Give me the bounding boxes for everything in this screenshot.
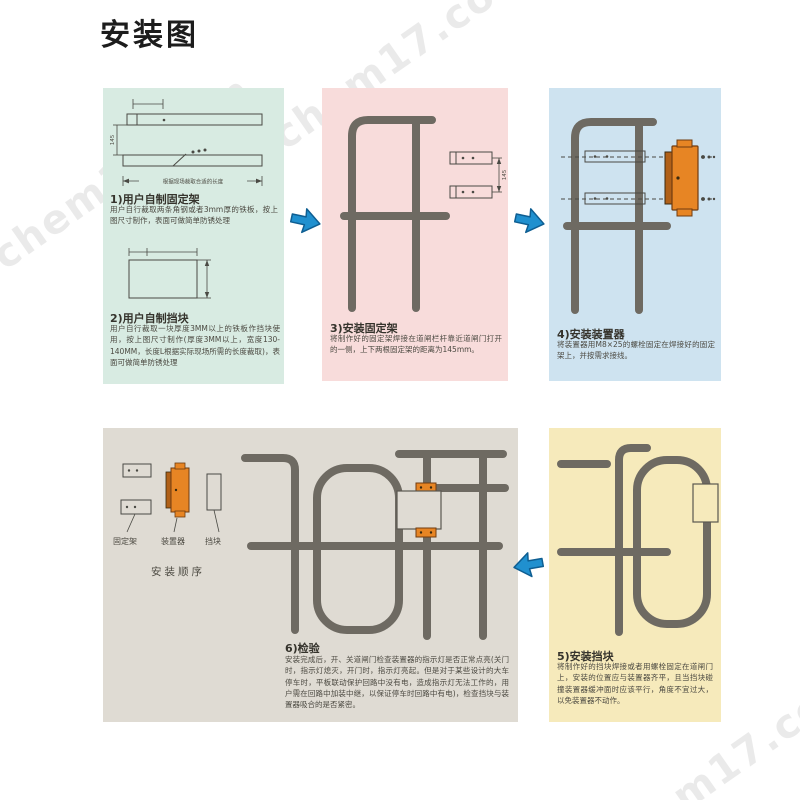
block-on-door-icon bbox=[693, 484, 718, 522]
step1-body: 用户自行裁取两条角钢或者3mm厚的铁板，按上图尺寸制作，表面可做简单防锈处理 bbox=[110, 204, 278, 227]
panel-step-5: 5)安装挡块 将制作好的挡块焊接或者用螺栓固定在道闸门上，安装的位置应与装置器齐… bbox=[549, 428, 721, 722]
step5-body: 将制作好的挡块焊接或者用螺栓固定在道闸门上，安装的位置应与装置器齐平，且当挡块碰… bbox=[557, 661, 713, 706]
frame-gap-dimension: 145 bbox=[110, 134, 116, 145]
step4-body: 将装置器用M8×25的螺栓固定在焊接好的固定架上，并按需求接线。 bbox=[557, 339, 715, 362]
panel-step-3: 145 3)安装固定架 将制作好的固定架焊接在道闸栏杆靠近道闸门打开的一侧，上下… bbox=[322, 88, 508, 381]
device-orange-icon bbox=[665, 140, 698, 216]
step6-body: 安装完成后，开、关道闸门检查装置器的指示灯是否正常点亮(关门时，指示灯熄灭，开门… bbox=[285, 654, 509, 710]
installation-sequence-label: 安装顺序 bbox=[151, 564, 205, 579]
panel-step-1-2: 145 根据现场裁取合适的长度 1)用户自制固定架 用户自行裁取两条角钢或者3m… bbox=[103, 88, 284, 384]
device-orange-icon bbox=[166, 463, 189, 517]
parts-overview-drawing bbox=[111, 456, 235, 534]
step3-body: 将制作好的固定架焊接在道闸栏杆靠近道闸门打开的一侧，上下两根固定架的距离为145… bbox=[330, 333, 502, 356]
gate-door-with-block-drawing bbox=[549, 434, 721, 646]
arrow-right-icon bbox=[509, 203, 551, 242]
cut-length-note: 根据现场裁取合适的长度 bbox=[163, 178, 224, 186]
arrow-left-icon bbox=[507, 547, 548, 585]
fixing-frame-dimension-drawing: 145 根据现场裁取合适的长度 bbox=[107, 94, 280, 190]
page-title: 安装图 bbox=[100, 10, 199, 54]
panel-step-6: 固定架 装置器 挡块 安装顺序 bbox=[103, 428, 518, 722]
gate-frame-and-brackets-drawing: 145 bbox=[322, 96, 508, 318]
panel-step-4: 4)安装装置器 将装置器用M8×25的螺栓固定在焊接好的固定架上，并按需求接线。 bbox=[549, 88, 721, 381]
part-label-fixing-frame: 固定架 bbox=[113, 536, 137, 547]
arrow-right-icon bbox=[285, 203, 327, 242]
bracket-gap-dimension: 145 bbox=[502, 169, 508, 180]
assembled-gate-drawing bbox=[231, 434, 513, 642]
installation-diagram-page: chem17.com chem17.com chem17.com 安装图 145… bbox=[0, 0, 800, 800]
device-engaged-icon bbox=[397, 483, 441, 537]
part-label-block: 挡块 bbox=[205, 536, 221, 547]
part-label-device: 装置器 bbox=[161, 536, 185, 547]
device-mounting-drawing bbox=[549, 96, 721, 324]
block-dimension-drawing bbox=[107, 246, 280, 306]
step2-body: 用户自行裁取一块厚度3MM以上的铁板作挡块使用，按上图尺寸制作(厚度3MM以上，… bbox=[110, 323, 280, 368]
